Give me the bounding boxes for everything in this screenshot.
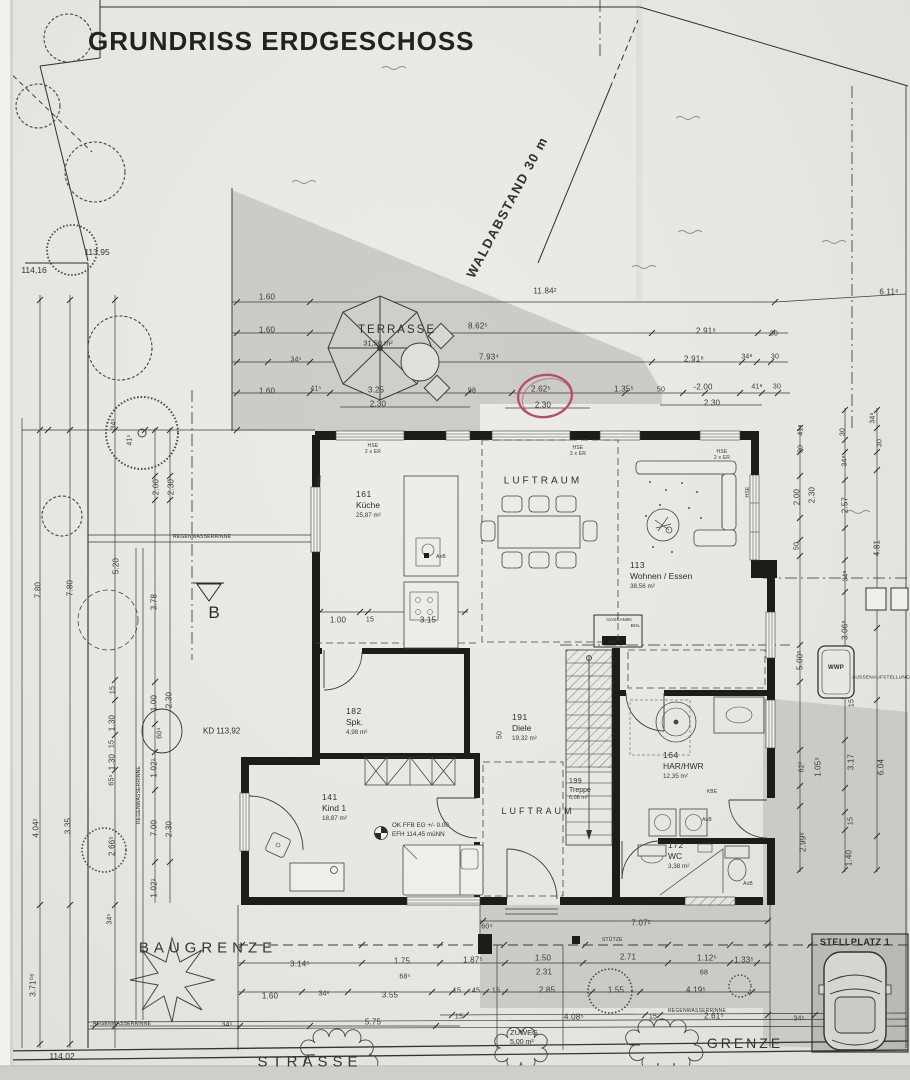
kd-circle xyxy=(142,709,182,753)
built-in-wardrobe xyxy=(365,757,455,785)
dining-table-and-chairs xyxy=(481,496,597,568)
heat-pump-unit xyxy=(818,588,908,698)
house-interior-walls xyxy=(315,636,775,905)
kid-room-furniture xyxy=(265,832,483,895)
kitchen-fixtures xyxy=(404,476,458,648)
section-marker xyxy=(193,583,224,601)
wc-fixtures xyxy=(638,844,749,895)
living-room-furniture xyxy=(636,461,736,553)
door-swings xyxy=(249,650,767,899)
floor-plan-linework xyxy=(0,0,910,1080)
car-top-view xyxy=(819,952,891,1050)
staircase xyxy=(566,650,612,845)
column-symbol xyxy=(572,936,580,944)
scanned-floor-plan-page: 1.6011.84²6.11⁸1.608.62⁵2.91⁸3034⁵7.93⁴2… xyxy=(0,0,910,1080)
level-marker-symbol xyxy=(375,827,388,840)
utility-room-fixtures xyxy=(630,697,764,836)
